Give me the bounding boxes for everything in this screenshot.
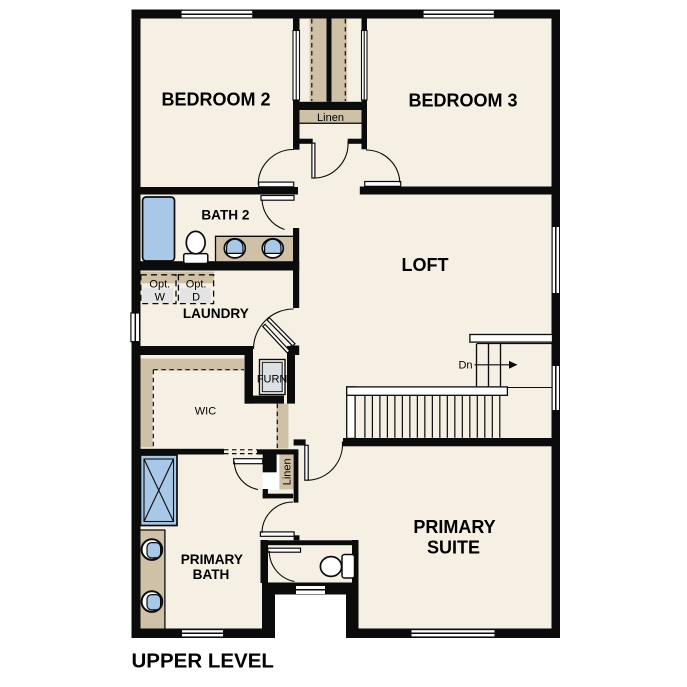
svg-text:FURN: FURN <box>257 373 288 385</box>
svg-text:BEDROOM 3: BEDROOM 3 <box>408 91 517 111</box>
svg-text:Opt.: Opt. <box>186 279 207 291</box>
svg-text:BATH: BATH <box>193 567 230 582</box>
svg-text:PRIMARY: PRIMARY <box>181 552 243 567</box>
svg-text:LAUNDRY: LAUNDRY <box>183 306 249 321</box>
svg-text:UPPER LEVEL: UPPER LEVEL <box>132 649 274 672</box>
svg-text:BATH 2: BATH 2 <box>201 207 250 222</box>
svg-text:SUITE: SUITE <box>427 538 480 558</box>
svg-text:LOFT: LOFT <box>402 255 449 275</box>
svg-text:PRIMARY: PRIMARY <box>413 517 495 537</box>
svg-text:D: D <box>192 292 200 304</box>
svg-text:Linen: Linen <box>317 112 344 124</box>
svg-text:BEDROOM 2: BEDROOM 2 <box>161 90 270 110</box>
svg-text:W: W <box>155 292 166 304</box>
svg-text:WIC: WIC <box>195 405 216 417</box>
svg-text:Dn: Dn <box>458 359 472 371</box>
svg-text:Opt.: Opt. <box>149 279 170 291</box>
svg-text:Linen: Linen <box>281 458 293 485</box>
